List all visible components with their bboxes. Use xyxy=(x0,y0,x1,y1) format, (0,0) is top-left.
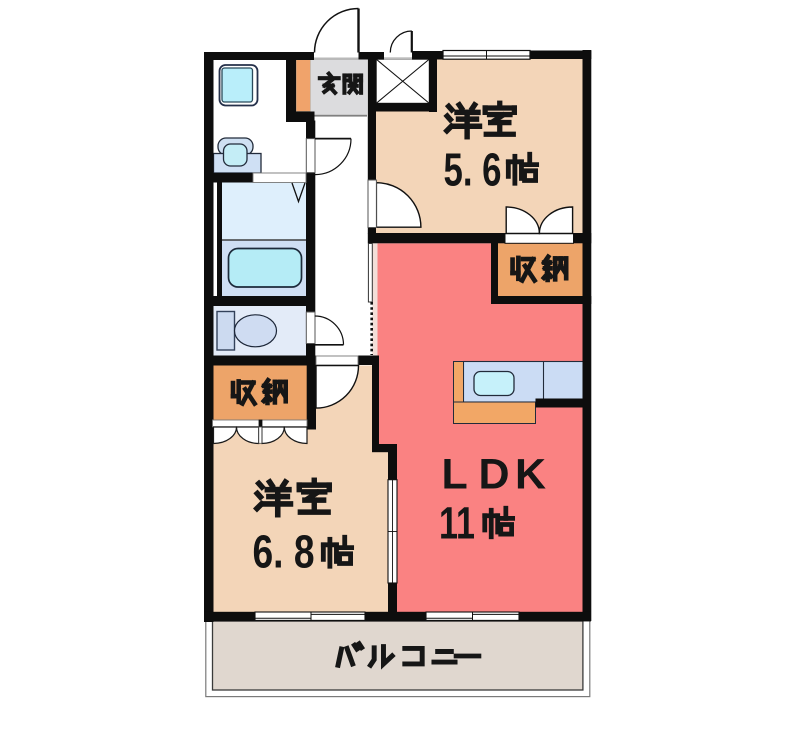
svg-text:6. 8: 6. 8 xyxy=(253,526,315,578)
svg-text:K: K xyxy=(515,450,546,498)
svg-text:11: 11 xyxy=(439,498,475,549)
svg-text:D: D xyxy=(479,450,510,498)
svg-text:L: L xyxy=(442,450,468,498)
svg-text:5. 6: 5. 6 xyxy=(444,143,502,195)
